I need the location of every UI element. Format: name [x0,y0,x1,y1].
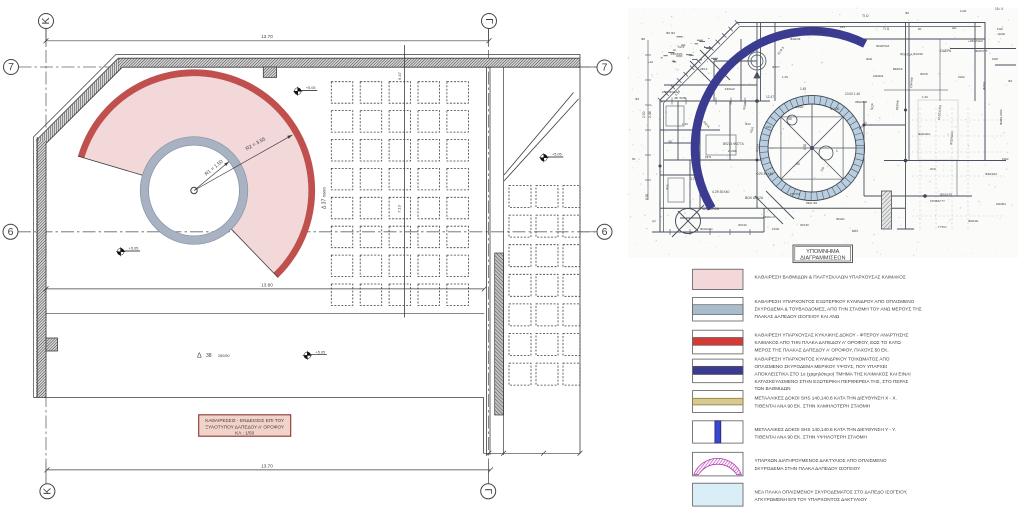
svg-text:ΞΥΛΟΤΥΠΟΥ ΔΑΠΕΔΟΥ Α' ΟΡΟΦΟΥ: ΞΥΛΟΤΥΠΟΥ ΔΑΠΕΔΟΥ Α' ΟΡΟΦΟΥ [205,424,285,429]
svg-text:ΗΩ: ΗΩ [952,26,957,30]
svg-text:ΔΙΑΓΡΑΜΜΙΣΕΩΝ: ΔΙΑΓΡΑΜΜΙΣΕΩΝ [800,256,845,262]
svg-text:Φ2 Φ4: Φ2 Φ4 [666,31,675,35]
svg-text:Φ0: Φ0 [641,37,645,41]
svg-text:6: 6 [602,226,608,238]
svg-text:ΤΙΘΕΝΤΑΙ ΑΝΑ 90 ΕΚ. ΣΤΗΝ ΧΑΜΗΛ: ΤΙΘΕΝΤΑΙ ΑΝΑ 90 ΕΚ. ΣΤΗΝ ΧΑΜΗΛΟΤΕΡΗ ΣΤΑΘ… [755,403,871,408]
svg-text:+3Φ4/Ω1/Ζ: +3Φ4/Ω1/Ζ [968,39,983,43]
svg-text:+5.05: +5.05 [306,86,316,90]
svg-text:ΚΑΘΑΙΡΕΣΗ ΥΠΑΡΧΟΝΤΟΣ ΕΞΩΤΕΡΙΚΟ: ΚΑΘΑΙΡΕΣΗ ΥΠΑΡΧΟΝΤΟΣ ΕΞΩΤΕΡΙΚΟΥ ΚΥΛΙΝΔΡΟ… [755,299,915,304]
svg-text:ΣΚΥΡ.Δ: ΣΚΥΡ.Δ [790,192,800,196]
svg-text:1.20: 1.20 [922,95,928,99]
svg-text:60: 60 [918,27,922,31]
svg-text:ΘΩΡ2ΩΑ: ΘΩΡ2ΩΑ [900,52,913,57]
svg-text:50: 50 [632,157,636,161]
svg-text:8.50: 8.50 [645,194,649,200]
svg-text:ΚΖΨ: ΚΖΨ [678,45,685,49]
svg-text:Φ10: Φ10 [665,184,670,190]
svg-text:Γ: Γ [483,18,495,24]
svg-text:Φ2Ω4-2ΩΙΑ: Φ2Ω4-2ΩΙΑ [999,109,1003,125]
svg-text:ΒΕΡΑΚ: ΒΕΡΑΚ [895,100,900,110]
svg-text:ΚΑΘΑΙΡΕΣΗ ΒΑΘΜΙΔΩΝ & ΠΛΑΤΥΣΚΑΛ: ΚΑΘΑΙΡΕΣΗ ΒΑΘΜΙΔΩΝ & ΠΛΑΤΥΣΚΑΛΩΝ ΥΠΑΡΧΟΥ… [755,274,906,279]
svg-text:ΤΙ Ω: ΤΙ Ω [883,27,890,31]
svg-text:ΒΩΧ 80Χ2Α: ΒΩΧ 80Χ2Α [745,196,764,200]
svg-text:Φ2Χ7: Φ2Χ7 [772,65,780,69]
svg-text:7.13: 7.13 [396,204,401,213]
svg-text:3ΦΩ2ΚΦ: 3ΦΩ2ΚΦ [855,100,868,104]
svg-text:ΜΕΤΑΛΛΙΚΕΣ ΔΟΚΟΙ SHS 140,140.8: ΜΕΤΑΛΛΙΚΕΣ ΔΟΚΟΙ SHS 140,140.8 ΚΑΤΑ ΤΗΝ … [755,427,897,432]
svg-text:Φ3Ω4Ω2: Φ3Ω4Ω2 [985,172,997,176]
svg-text:Ω.29Φ: Ω.29Φ [728,149,737,153]
svg-text:2.44: 2.44 [648,111,652,118]
svg-text:Φ4: Φ4 [1008,79,1012,83]
svg-text:Γ: Γ [482,488,494,494]
svg-text:Φ1Ω4: Φ1Ω4 [755,143,760,152]
svg-text:Φ4Ω2Φ: Φ4Ω2Φ [790,37,801,41]
svg-text:ΚΑΘΑΙΡΕΣΗ ΥΠΑΡΧΟΝΤΟΣ ΚΥΛΙΝΔΡΙΚ: ΚΑΘΑΙΡΕΣΗ ΥΠΑΡΧΟΝΤΟΣ ΚΥΛΙΝΔΡΙΚΟΥ ΤΟΙΧΩΜΑ… [755,357,890,362]
svg-text:ΒΕΡΑΚ: ΒΕΡΑΚ [893,67,903,71]
svg-text:3.70: 3.70 [690,177,696,181]
svg-text:12.47: 12.47 [766,95,774,99]
svg-text:ΚΩΘ: ΚΩΘ [958,75,965,79]
svg-text:2.50: 2.50 [642,111,646,118]
svg-text:ΠΛΑΚΑΣ ΔΑΠΕΔΟΥ ΙΣΟΓΕΙΟΥ ΚΑΙ ΑΝ: ΠΛΑΚΑΣ ΔΑΠΕΔΟΥ ΙΣΟΓΕΙΟΥ ΚΑΙ ΑΝΩ [755,314,840,319]
svg-text:38: 38 [206,353,212,359]
svg-text:1.50: 1.50 [803,144,807,150]
svg-text:Γ42Χ 80Χ2Α: Γ42Χ 80Χ2Α [700,207,720,211]
svg-text:1.10: 1.10 [682,122,688,126]
svg-text:ΖΨΚ ΦΩΖΑ: ΖΨΚ ΦΩΖΑ [662,90,678,94]
svg-text:181: 181 [840,25,845,29]
svg-text:ΜΠ1: ΜΠ1 [705,155,712,159]
svg-text:ΒΩΧ: ΒΩΧ [852,229,858,233]
svg-text:Δ: Δ [197,353,202,360]
svg-text:6: 6 [8,226,14,238]
svg-text:ΣΚΥΡΟΔΕΜΑ ΣΤΗΝ ΠΛΑΚΑ ΔΑΠΕΔΟΥ: ΣΚΥΡΟΔΕΜΑ ΣΤΗΝ ΠΛΑΚΑ ΔΑΠΕΔΟΥ ΙΣΟΓΕΙΟΥ [755,466,862,471]
svg-text:ΚΛΙΜΑΚΟΣ ΑΠΟ ΤΗΝ ΠΛΑΚΑ ΔΑΠΕΔΟΥ: ΚΛΙΜΑΚΟΣ ΑΠΟ ΤΗΝ ΠΛΑΚΑ ΔΑΠΕΔΟΥ Α' ΟΡΟΦΟΥ… [755,340,902,345]
svg-text:4ΦΩΘ Ω: 4ΦΩΘ Ω [763,215,775,219]
svg-text:7: 7 [602,62,608,74]
svg-text:Φ2.00: Φ2.00 [830,107,839,111]
svg-text:Φ2Ω: Φ2Ω [866,57,873,61]
svg-text:Φ2Ω4: Φ2Ω4 [982,82,986,90]
svg-text:+5.05: +5.05 [315,350,325,354]
svg-text:ΣΚ40: ΣΚ40 [772,227,780,231]
svg-text:204Ι: 204Ι [930,167,936,171]
svg-text:ΑΠΟΚΛΕΙΣΤΙΚΑ ΣΤΟ 1ο (χαμηλότερ: ΑΠΟΚΛΕΙΣΤΙΚΑ ΣΤΟ 1ο (χαμηλότερο) ΤΜΗΜΑ Τ… [755,370,911,376]
svg-text:Φ4/20: Φ4/20 [795,105,804,109]
svg-text:ΣΚΥΡΟΔΕΜΑ & ΤΟΥΒΛΟΔΟΜΕΣ, ΑΠΟ Τ: ΣΚΥΡΟΔΕΜΑ & ΤΟΥΒΛΟΔΟΜΕΣ, ΑΠΟ ΤΗΝ ΣΤΑΘΜΗ … [755,306,922,311]
svg-text:ΥΠΑΡΧΩΝ ΔΙΑΤΗΡΟΥΜΕΝΟΣ ΔΑΚΤΥΛΙΟ: ΥΠΑΡΧΩΝ ΔΙΑΤΗΡΟΥΜΕΝΟΣ ΔΑΚΤΥΛΙΟΣ ΑΠΟ ΟΠΛΙ… [755,458,887,463]
svg-text:ΓΥΨΟ: ΓΥΨΟ [938,225,947,229]
svg-text:ΟΠΛΙΣΜΕΝΟ ΣΚΥΡΟΔΕΜΑ ΜΕΡΙΚΟΥ ΥΨ: ΟΠΛΙΣΜΕΝΟ ΣΚΥΡΟΔΕΜΑ ΜΕΡΙΚΟΥ ΥΨΟΥΣ, ΠΟΥ Υ… [755,364,888,369]
svg-text:Β9274 ΦΩ77Α: Β9274 ΦΩ77Α [723,142,745,146]
svg-text:ΦΩ2Ω4Ω: ΦΩ2Ω4Ω [700,227,713,231]
svg-text:K: K [40,17,52,24]
svg-text:+10: +10 [648,60,653,64]
svg-text:Φ2Ω4ΩΑ: Φ2Ω4ΩΑ [918,132,930,136]
svg-text:Φ12: Φ12 [745,122,751,126]
svg-text:13.80: 13.80 [261,282,273,287]
svg-text:ΖΩ2Φ4: ΖΩ2Φ4 [996,202,1006,206]
svg-text:ΣΙΔΕΡΑ: ΣΙΔΕΡΑ [940,49,952,53]
svg-text:13.70: 13.70 [261,463,273,468]
svg-text:50: 50 [788,117,792,121]
svg-text:ΣΗΖ: ΣΗΖ [997,27,1003,31]
svg-text:Φ2Ω4Ω: Φ2Ω4Ω [968,219,979,223]
svg-text:ΜΕΡΟΣ ΤΗΣ ΠΛΑΚΑΣ ΔΑΠΕΔΟΥ Α' ΟΡ: ΜΕΡΟΣ ΤΗΣ ΠΛΑΚΑΣ ΔΑΠΕΔΟΥ Α' ΟΡΟΦΟΥ, ΠΑΧΟ… [755,347,889,352]
svg-text:ΚΑΘΑΙΡΕΣΕΙΣ - ΕΝΔΕΙΞΕΙΣ ΕΠΙ ΤΟ: ΚΑΘΑΙΡΕΣΕΙΣ - ΕΝΔΕΙΞΕΙΣ ΕΠΙ ΤΟΥ [205,418,285,423]
svg-text:4.29 30Χ40: 4.29 30Χ40 [712,190,729,194]
svg-text:1.45: 1.45 [800,87,806,91]
svg-text:ΚΩΡ: ΚΩΡ [992,57,998,61]
svg-text:K: K [42,488,54,495]
svg-text:ΦΩΡ2ΩΑ: ΦΩΡ2ΩΑ [812,30,826,34]
svg-text:1.25: 1.25 [782,75,788,79]
svg-text:30Χ40: 30Χ40 [738,223,747,227]
svg-text:ΥΠΟΜΝΗΜΑ: ΥΠΟΜΝΗΜΑ [806,249,840,255]
svg-text:ΑΓΚΥΡΩΜΕΝΗ ΕΠΙ ΤΟΥ ΥΠΑΡΧΟΝΤΟΣ: ΑΓΚΥΡΩΜΕΝΗ ΕΠΙ ΤΟΥ ΥΠΑΡΧΟΝΤΟΣ ΔΑΚΤΥΛΙΟΥ [755,497,869,502]
svg-text:ΚΣ1: ΚΣ1 [766,125,772,129]
svg-text:ΚΑΤΑΣΚΕΥΑΣΜΕΝΟ ΣΤΗΝ ΕΞΩΤΕΡΙΚΗ: ΚΑΤΑΣΚΕΥΑΣΜΕΝΟ ΣΤΗΝ ΕΞΩΤΕΡΙΚΗ ΠΕΡΙΦΕΡΕΙΑ… [755,379,909,384]
svg-text:1Η2Ι: 1Η2Ι [960,9,967,13]
svg-text:ΚΛ : 1/50: ΚΛ : 1/50 [235,430,254,435]
svg-text:ΤΙ Ω: ΤΙ Ω [862,14,869,18]
svg-text:4Φ ΨΩΒ: 4Φ ΨΩΒ [674,96,686,100]
svg-text:Φ29 30Χ40: Φ29 30Χ40 [756,172,773,176]
svg-text:2Φ14: 2Φ14 [700,67,708,71]
svg-text:ΝΕΑ ΠΛΑΚΑ ΟΠΛΙΣΜΕΝΟΥ ΣΚΥΡΟΔΕΜΑ: ΝΕΑ ΠΛΑΚΑ ΟΠΛΙΣΜΕΝΟΥ ΣΚΥΡΟΔΕΜΑΤΟΣ ΣΤΟ ΔΑ… [755,489,908,494]
svg-text:ΜΕΤΑΛΛΙΚΕΣ ΔΟΚΟΙ SHS 140,140.8: ΜΕΤΑΛΛΙΚΕΣ ΔΟΚΟΙ SHS 140,140.8 ΚΑΤΑ ΤΗΝ … [755,395,897,400]
svg-text:+5.05: +5.05 [552,153,562,157]
svg-text:ΦΩΡΟΥΤ: ΦΩΡΟΥΤ [975,49,988,53]
svg-text:Φ2Χ8: Φ2Χ8 [920,72,928,76]
svg-text:5ΦΩ.Φ2: 5ΦΩ.Φ2 [806,201,818,205]
svg-text:30: 30 [668,140,672,144]
svg-text:ΣΕΝΑΖ: ΣΕΝΑΖ [725,87,735,91]
svg-text:ΦΩ2Ω: ΦΩ2Ω [836,217,845,221]
svg-text:ΘΩΘ: ΘΩΘ [998,32,1006,36]
svg-text:Φ2: Φ2 [905,11,909,15]
svg-text:ΚΡ3ΒΑΓ7Υ: ΚΡ3ΒΑΓ7Υ [930,199,945,203]
svg-text:10.00 1.40: 10.00 1.40 [845,92,860,96]
svg-text:ΦΩ4Ρ/ΩΖ: ΦΩ4Ρ/ΩΖ [876,44,889,48]
svg-text:ΤΩΝ ΒΑΘΜΙΔΩΝ: ΤΩΝ ΒΑΘΜΙΔΩΝ [755,386,791,391]
svg-text:Φ4: Φ4 [635,97,639,101]
svg-text:ΦΩΡ: ΦΩΡ [870,103,875,110]
svg-text:ΖΩΘΩ4: ΖΩΘΩ4 [873,74,884,78]
svg-text:30Χ40: 30Χ40 [800,223,809,227]
svg-text:ΤΙΘΕΝΤΑΙ ΑΝΑ 90 ΕΚ. ΣΤΗΝ ΥΨΗΛΟ: ΤΙΘΕΝΤΑΙ ΑΝΑ 90 ΕΚ. ΣΤΗΝ ΥΨΗΛΟΤΕΡΗ ΣΤΑΘΜ… [755,435,867,440]
svg-text:(2): (2) [652,219,656,223]
svg-text:.50: .50 [795,162,800,166]
svg-text:6.47: 6.47 [397,71,402,80]
svg-text:ΚΑΘΑΙΡΕΣΗ ΥΠΑΡΧΟΥΣΑΣ ΚΥΚΛΙΚΗΣ: ΚΑΘΑΙΡΕΣΗ ΥΠΑΡΧΟΥΣΑΣ ΚΥΚΛΙΚΗΣ ΔΟΚΟΥ - ΦΤ… [755,333,909,338]
svg-text:15 / 4: 15 / 4 [995,7,1003,11]
svg-text:ΖΩΘ: ΖΩΘ [1002,157,1009,161]
svg-text:Φ10/20: Φ10/20 [913,52,923,56]
svg-text:1: 1 [836,149,838,153]
svg-text:13.70: 13.70 [261,34,273,39]
svg-text:Φ20Χ25: Φ20Χ25 [940,193,952,197]
svg-text:260/50: 260/50 [218,354,230,358]
svg-text:7: 7 [8,61,14,73]
svg-text:+5.05: +5.05 [129,247,139,251]
